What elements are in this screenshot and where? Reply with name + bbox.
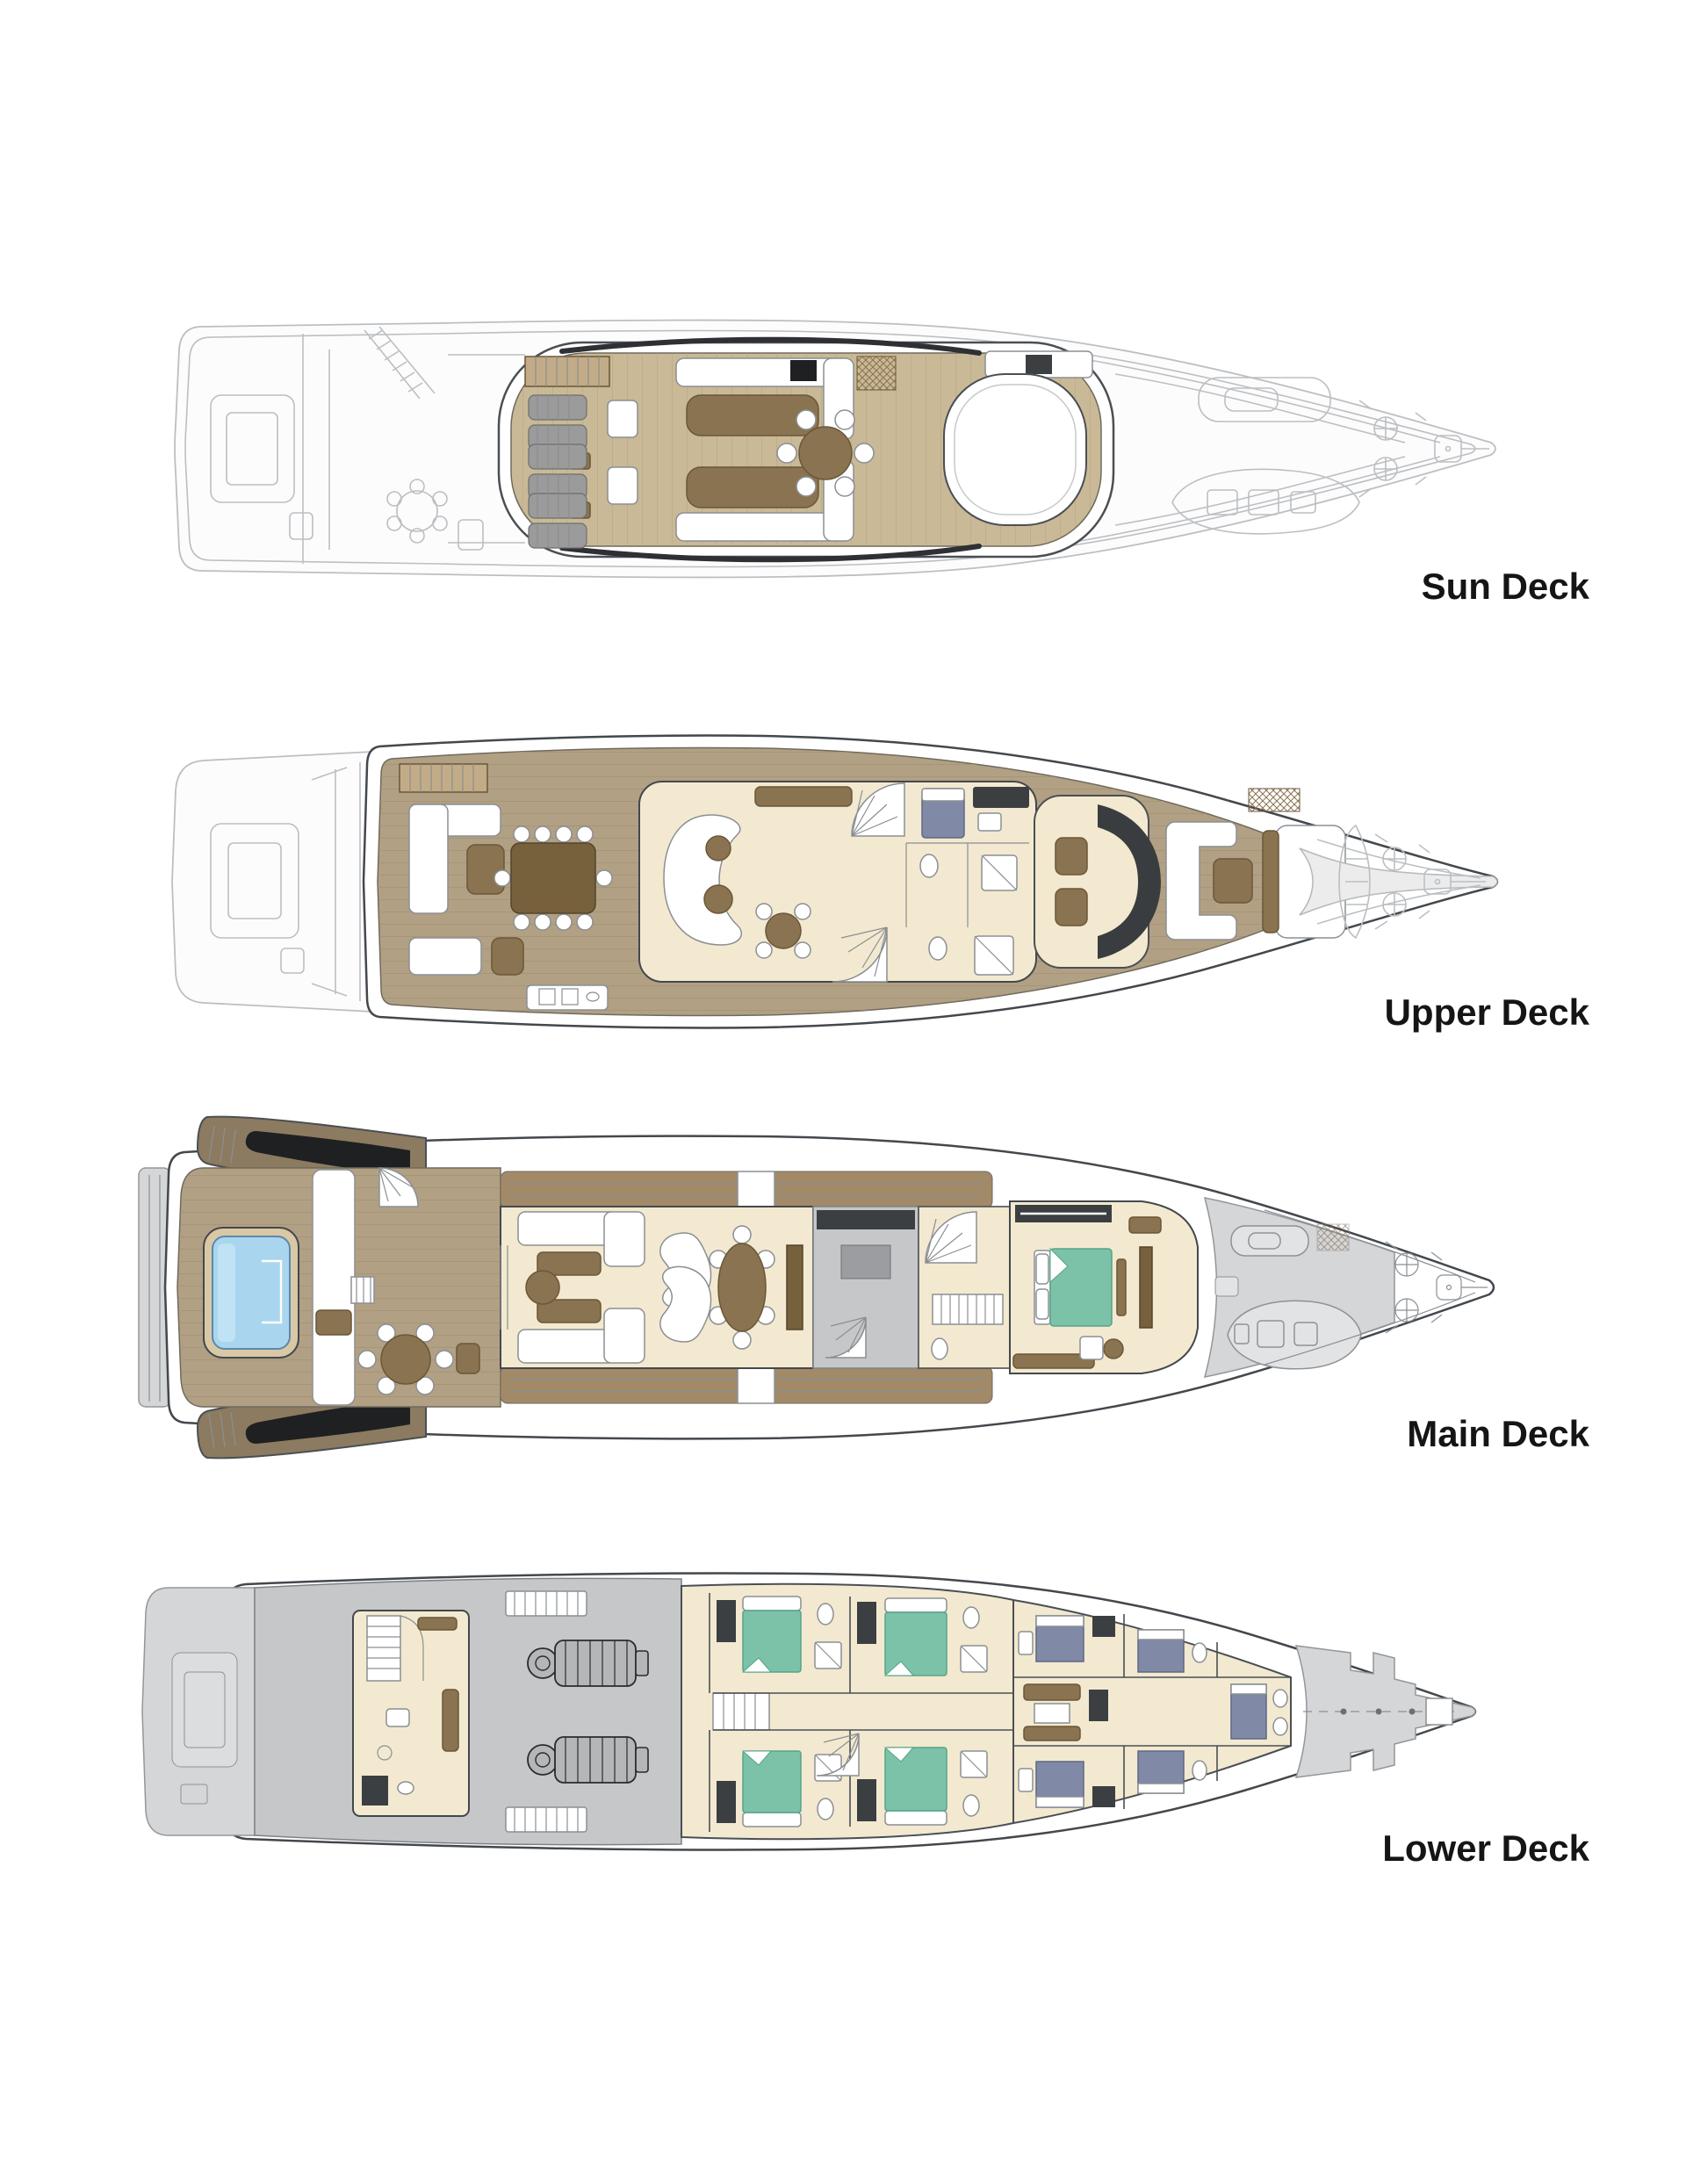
side-table <box>706 836 731 861</box>
helm-chair <box>1056 889 1087 926</box>
armchair <box>467 845 504 894</box>
armchair <box>492 938 523 975</box>
bridge <box>1034 796 1161 968</box>
tv-cabinet <box>790 360 817 381</box>
locker <box>1092 1616 1115 1637</box>
cabinet <box>755 787 852 806</box>
sky-lounge <box>639 782 1036 982</box>
bow-chain-locker <box>1296 1646 1475 1777</box>
deck-label-sun-deck: Sun Deck <box>1291 566 1589 607</box>
side-table <box>704 885 732 913</box>
deck-label-lower-deck: Lower Deck <box>1291 1828 1589 1869</box>
vanity <box>1129 1217 1161 1233</box>
teak-grate <box>1249 789 1300 811</box>
aft-deck <box>177 1168 501 1407</box>
lower-deck-plan <box>123 1561 1510 1862</box>
platform-hatch <box>172 1653 237 1767</box>
anchor-hatch <box>1426 1698 1452 1725</box>
armchair-round <box>526 1271 559 1304</box>
wc <box>1192 1761 1207 1780</box>
beach-club-table <box>386 1709 409 1726</box>
foyer <box>919 1207 1010 1368</box>
ottoman <box>608 400 638 437</box>
sun-deck-plan <box>149 297 1506 602</box>
ottoman <box>608 467 638 504</box>
grill <box>857 357 896 390</box>
day-head-wc <box>932 1338 947 1359</box>
master-suite <box>1010 1201 1198 1373</box>
tender-rib <box>1228 1301 1361 1368</box>
wc <box>818 1604 833 1625</box>
ottoman <box>1104 1339 1123 1359</box>
captain-cabin <box>922 789 964 838</box>
fore-table <box>1214 859 1252 903</box>
deck-label-upper-deck: Upper Deck <box>1291 992 1589 1033</box>
master-bed <box>1034 1249 1126 1326</box>
deck-box <box>1215 1277 1238 1296</box>
galley <box>813 1207 919 1368</box>
wc <box>963 1607 979 1628</box>
pool <box>204 1228 299 1358</box>
bar-appliance <box>1026 355 1052 374</box>
salon <box>501 1207 813 1368</box>
side-door <box>738 1366 775 1403</box>
wc <box>1192 1643 1207 1662</box>
beach-club-tv <box>418 1618 457 1630</box>
storage-box <box>316 1310 351 1335</box>
beach-club-bar <box>362 1776 388 1806</box>
garage-engine-room <box>255 1578 708 1844</box>
jet-ski <box>1231 1226 1308 1256</box>
upper-deck-plan <box>149 727 1506 1036</box>
wc <box>963 1795 979 1816</box>
salon-sofa <box>518 1212 616 1245</box>
master-tv <box>1140 1247 1152 1328</box>
beach-club <box>353 1611 469 1816</box>
galley-island <box>841 1245 890 1279</box>
wc <box>1273 1690 1287 1707</box>
sun-deck-hardtop <box>499 340 1113 560</box>
locker <box>1092 1786 1115 1807</box>
aft-deck-stairs <box>400 764 487 792</box>
main-deck-plan <box>123 1114 1510 1461</box>
side-door <box>738 1171 775 1208</box>
salon-sofa <box>518 1330 616 1363</box>
wc <box>818 1798 833 1820</box>
wc <box>1273 1718 1287 1735</box>
aft-seat <box>457 1344 479 1373</box>
fore-deck-gray <box>1205 1198 1394 1377</box>
sideboard <box>787 1245 803 1330</box>
upper-deck-aft-ghost <box>172 752 373 1012</box>
deck-label-main-deck: Main Deck <box>1291 1414 1589 1454</box>
guest-stairs <box>713 1693 769 1730</box>
sun-deck-stairs <box>525 357 609 386</box>
stairs-down <box>933 1294 1003 1324</box>
guest-area <box>681 1584 1013 1840</box>
beach-club-sofa <box>443 1690 458 1751</box>
helm-chair <box>1056 838 1087 875</box>
stern-platform <box>142 1588 255 1835</box>
rug <box>1080 1337 1103 1359</box>
yacht-deck-plans-page: Sun Deck <box>0 0 1686 2184</box>
helm-skylight <box>944 374 1086 525</box>
